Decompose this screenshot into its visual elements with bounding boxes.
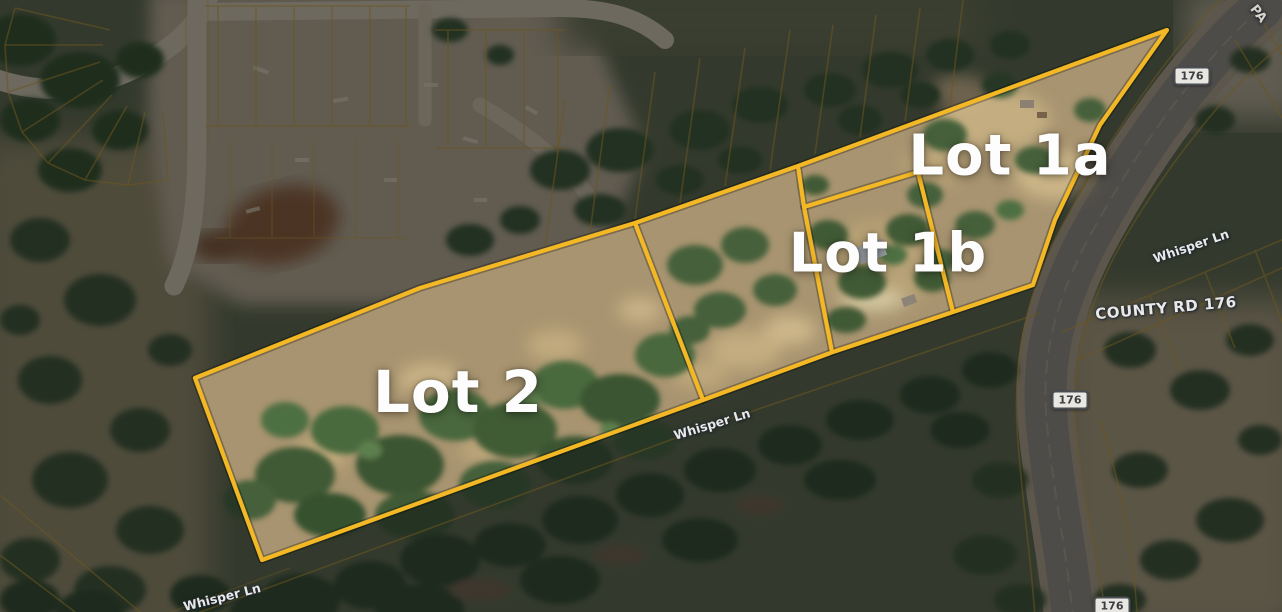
lot-label-1b: Lot 1b — [789, 222, 987, 285]
road-label-whisper-ln-mid: Whisper Ln — [672, 405, 752, 443]
lot-label-2: Lot 2 — [373, 358, 543, 426]
lot-label-1a: Lot 1a — [908, 124, 1111, 189]
route-badge-176-south: 176 — [1094, 597, 1131, 612]
route-badge-176-north: 176 — [1174, 67, 1211, 86]
road-label-whisper-ln-ne: Whisper Ln — [1151, 226, 1231, 266]
road-label-partial: PA — [1246, 2, 1269, 26]
map-labels: Lot 1a Lot 1b Lot 2 Whisper Ln Whisper L… — [0, 0, 1282, 612]
road-label-whisper-ln-sw: Whisper Ln — [182, 580, 262, 612]
route-badge-176-mid: 176 — [1052, 391, 1089, 410]
road-label-county-rd-176: COUNTY RD 176 — [1095, 293, 1238, 323]
satellite-map-canvas: Lot 1a Lot 1b Lot 2 Whisper Ln Whisper L… — [0, 0, 1282, 612]
